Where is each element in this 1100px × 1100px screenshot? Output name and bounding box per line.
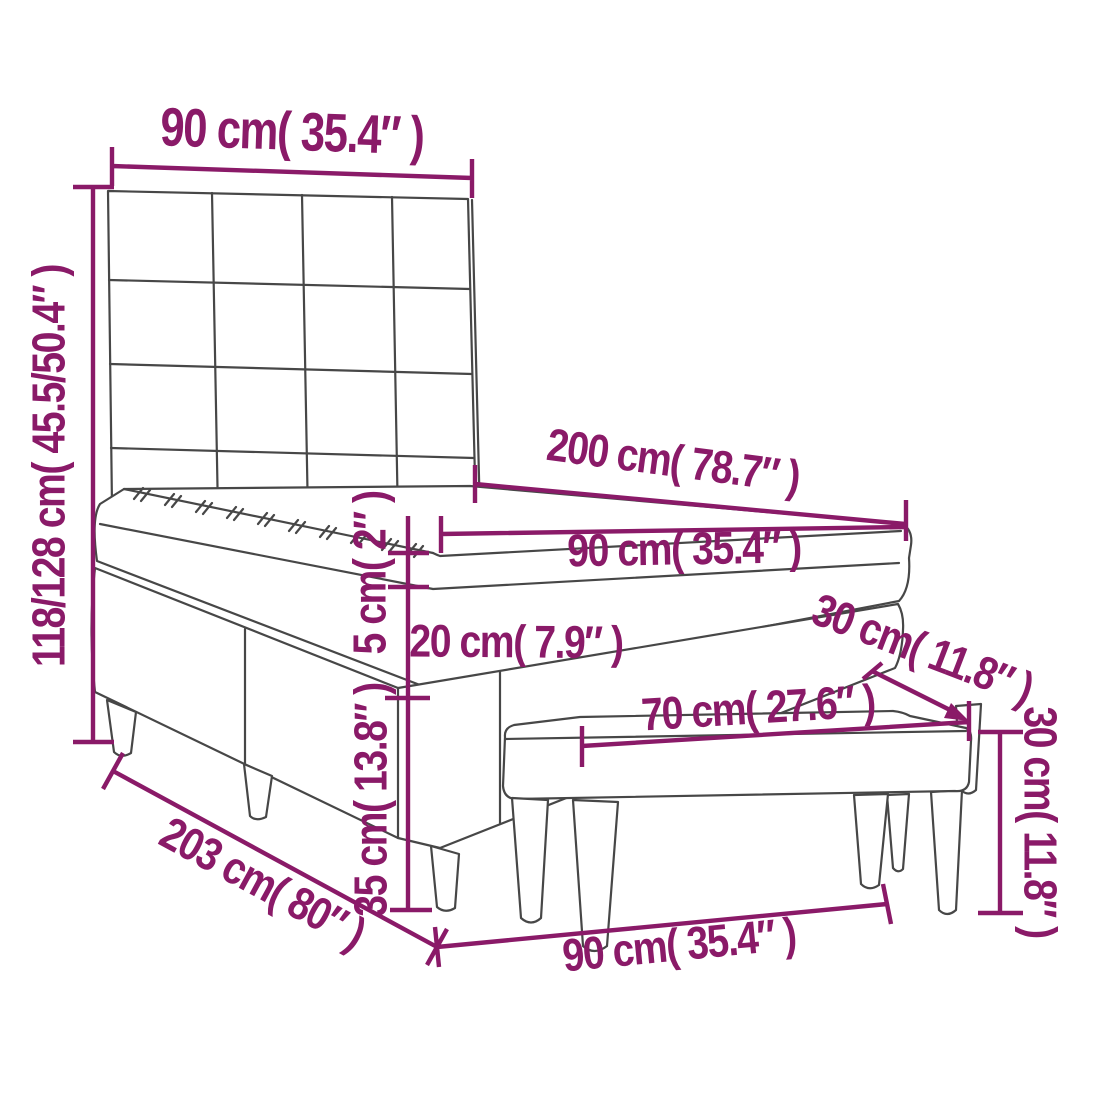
- dim-label-overall-height: 118/128 cm( 45.5/50.4″ ): [24, 265, 76, 667]
- dim-label-topper-height: 5 cm( 2″ ): [345, 491, 397, 654]
- furniture-dimension-drawing: [0, 0, 1100, 1100]
- dim-label-base-height: 35 cm( 13.8″ ): [346, 683, 398, 917]
- diagram-canvas: 90 cm( 35.4″ ) 118/128 cm( 45.5/50.4″ ) …: [0, 0, 1100, 1100]
- bed-leg: [431, 846, 459, 911]
- dim-label-mattress-height: 20 cm( 7.9″ ): [409, 616, 623, 670]
- bench-leg-back: [887, 794, 909, 871]
- dim-label-headboard-width: 90 cm( 35.4″ ): [159, 95, 424, 168]
- dim-label-bench-height: 30 cm( 11.8″ ): [1013, 706, 1065, 937]
- bench-leg: [512, 798, 548, 923]
- bench-leg: [854, 794, 888, 888]
- bench-leg: [931, 790, 962, 914]
- dim-label-mattress-width: 90 cm( 35.4″ ): [567, 522, 801, 578]
